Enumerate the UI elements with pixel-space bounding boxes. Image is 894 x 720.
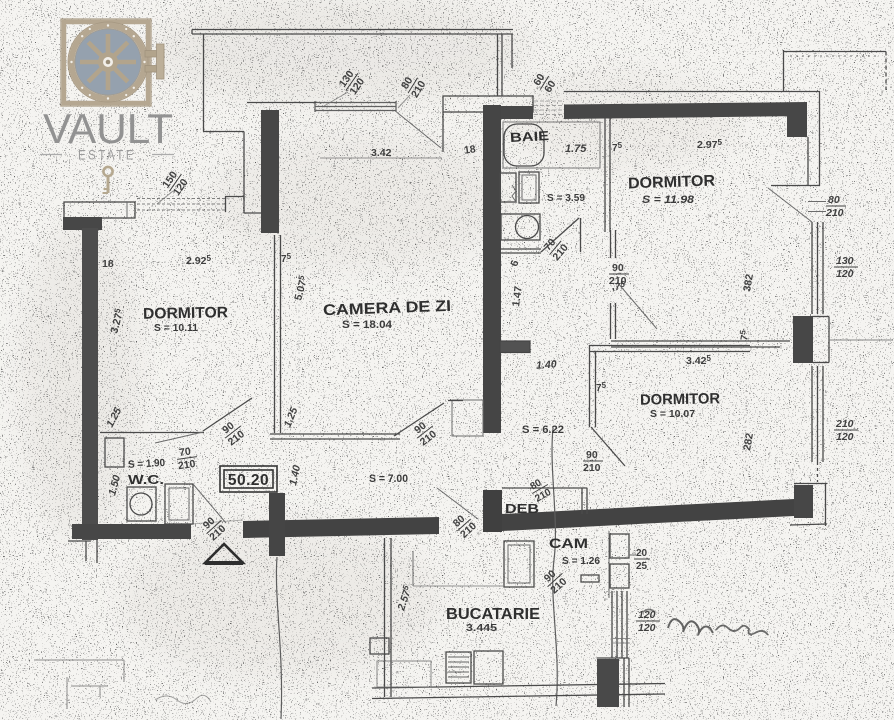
svg-text:20: 20	[636, 548, 648, 559]
svg-text:90: 90	[612, 262, 624, 274]
svg-text:CAM: CAM	[549, 536, 588, 551]
svg-text:210: 210	[825, 207, 844, 219]
svg-text:S = 11.98: S = 11.98	[642, 194, 695, 206]
svg-text:120: 120	[638, 622, 656, 634]
svg-text:1.75: 1.75	[565, 143, 587, 155]
svg-text:210: 210	[835, 418, 854, 430]
svg-text:120: 120	[836, 268, 854, 280]
svg-text:DORMITOR: DORMITOR	[628, 172, 716, 192]
svg-text:DORMITOR: DORMITOR	[143, 304, 228, 322]
svg-text:DEB: DEB	[505, 501, 539, 516]
svg-text:VAULT: VAULT	[43, 105, 173, 152]
svg-text:ESTATE: ESTATE	[78, 147, 136, 163]
svg-text:S = 1.26: S = 1.26	[562, 555, 600, 567]
svg-text:3.445: 3.445	[466, 622, 497, 634]
svg-text:18: 18	[102, 258, 114, 270]
svg-text:90: 90	[586, 449, 598, 461]
svg-text:S = 18.04: S = 18.04	[342, 319, 393, 331]
svg-text:50.20: 50.20	[228, 472, 269, 489]
svg-text:70: 70	[178, 445, 191, 459]
svg-text:BUCATARIE: BUCATARIE	[446, 606, 540, 623]
svg-text:120: 120	[836, 431, 854, 443]
svg-text:25: 25	[636, 561, 648, 572]
svg-text:S = 1.90: S = 1.90	[128, 457, 166, 471]
svg-text:BAIE: BAIE	[510, 128, 550, 145]
svg-text:3.42: 3.42	[371, 147, 392, 159]
svg-text:S = 10.07: S = 10.07	[650, 408, 695, 420]
svg-text:S = 6.22: S = 6.22	[522, 424, 564, 436]
svg-text:W.C.: W.C.	[128, 472, 164, 487]
svg-text:80: 80	[828, 194, 840, 206]
svg-text:S = 10.11: S = 10.11	[154, 322, 198, 334]
svg-text:18: 18	[463, 143, 476, 157]
svg-text:S = 7.00: S = 7.00	[369, 473, 408, 485]
svg-text:210: 210	[177, 458, 196, 472]
svg-text:1.40: 1.40	[536, 358, 557, 371]
svg-text:S = 3.59: S = 3.59	[547, 192, 585, 204]
svg-text:120: 120	[638, 609, 656, 621]
svg-text:130: 130	[836, 255, 854, 267]
svg-text:210: 210	[583, 462, 601, 474]
svg-text:DORMITOR: DORMITOR	[640, 390, 720, 408]
svg-text:210: 210	[609, 275, 627, 287]
